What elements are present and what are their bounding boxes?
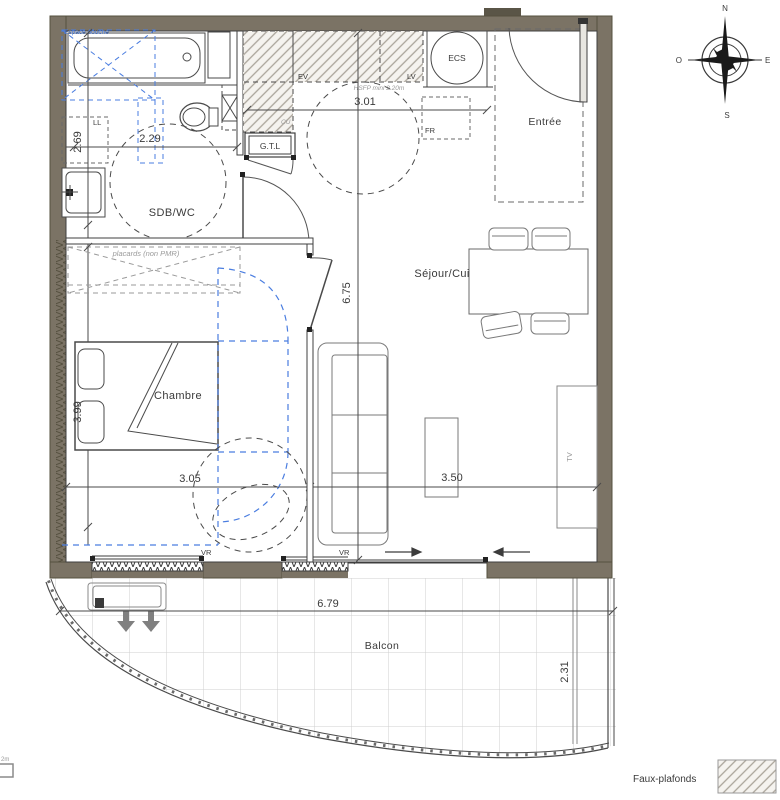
gtl-door: [248, 160, 293, 174]
roller-shutter-sejour: [282, 562, 348, 571]
room-label-entree: Entrée: [528, 116, 561, 128]
floor-plan-drawing: 6.79 2.31 Balcon VR VR: [0, 0, 780, 800]
wall-bottom-right: [487, 562, 612, 578]
bedroom-door: [307, 253, 332, 332]
cu-label: CU: [281, 119, 291, 126]
floor-plan: 6.79 2.31 Balcon VR VR: [0, 0, 780, 800]
washbasin: [62, 168, 105, 217]
dim-sdb-width-label: 2.29: [139, 133, 160, 145]
entree: Entrée: [495, 18, 588, 202]
window-sill-sejour: [282, 571, 348, 578]
dim-balcony-width-label: 6.79: [317, 598, 338, 610]
compass-east-label: E: [765, 56, 770, 65]
compass-rose: N S E O: [676, 4, 771, 120]
legend-faux-plafonds-label: Faux-plafonds: [633, 774, 696, 785]
tv-unit: TV: [557, 386, 597, 528]
compass-south-label: S: [724, 111, 729, 120]
clipped-fragment: 2m: [0, 757, 13, 777]
bathroom-partition: [237, 31, 243, 155]
chambre: placards (non PMR) Chambre 3.99: [62, 238, 332, 562]
wall-bottom-left: [50, 562, 92, 578]
dining-table: [469, 249, 588, 314]
partition-chambre-sdb: [66, 238, 313, 244]
legend-swatch: [718, 760, 776, 793]
kitchen: EV LV CU ECS FR HSFP mini 2.20m G.T.L: [243, 31, 493, 194]
sejour: Séjour/Cuisine TV 6.75: [62, 29, 601, 564]
dim-chambre-width-label: 3.05: [179, 473, 200, 485]
wall-insulation: [56, 240, 66, 562]
dim-chambre-height-label: 3.99: [72, 401, 84, 422]
ll-label: LL: [93, 118, 101, 127]
coffee-table: [425, 418, 458, 497]
roller-shutter-bedroom: [92, 562, 203, 571]
dim-balcony-depth: 2.31: [559, 661, 571, 682]
ecs-label: ECS: [448, 53, 466, 63]
arrow-right-icon: [412, 548, 421, 556]
vr-label-right: VR: [339, 548, 350, 557]
compass-north-label: N: [722, 4, 728, 13]
clipped-text: 2m: [1, 757, 9, 763]
lv-label: LV: [407, 72, 416, 81]
duct-box: [222, 85, 238, 130]
pillow: [78, 349, 104, 389]
legend: Faux-plafonds: [633, 760, 776, 793]
hsfp-label: HSFP mini 2.20m: [354, 85, 405, 92]
kitchen-counter-left: [243, 31, 293, 132]
placards-label: placards (non PMR): [112, 249, 180, 258]
wall-bottom-pier: [203, 562, 282, 578]
dim-sdb-height-label: 2.69: [72, 131, 84, 152]
wall-right: [597, 16, 612, 578]
shower-screen: [208, 32, 230, 78]
fr-label: FR: [425, 126, 436, 135]
partition-chambre-sejour: [307, 330, 313, 562]
window-sill-bedroom: [92, 571, 203, 578]
arrow-left-icon: [494, 548, 503, 556]
tv-label: TV: [565, 452, 574, 462]
ev-label: EV: [298, 72, 308, 81]
dim-balcony-depth-label: 2.31: [559, 661, 571, 682]
room-label-chambre: Chambre: [154, 390, 202, 402]
bathroom-door: [240, 172, 309, 243]
windows: [90, 556, 488, 571]
bathtub-drain: [183, 53, 191, 61]
bench-fitting: [95, 598, 104, 608]
dim-sejour-height-label: 6.75: [341, 282, 353, 303]
bathtub: [68, 33, 205, 83]
turning-circle-chambre: [193, 438, 307, 552]
sliding-arrows: [385, 548, 530, 556]
vr-label-left: VR: [201, 548, 212, 557]
room-label-sdb: SDB/WC: [149, 207, 195, 219]
gtl-label: G.T.L: [260, 141, 281, 151]
balcony: 6.79 2.31 Balcon: [46, 578, 617, 763]
turning-circle-sdb: [110, 124, 226, 240]
room-label-balcon: Balcon: [365, 640, 400, 652]
dim-sejour-width-label: 3.50: [441, 472, 462, 484]
sofa: [318, 343, 388, 545]
compass-west-label: O: [676, 56, 682, 65]
